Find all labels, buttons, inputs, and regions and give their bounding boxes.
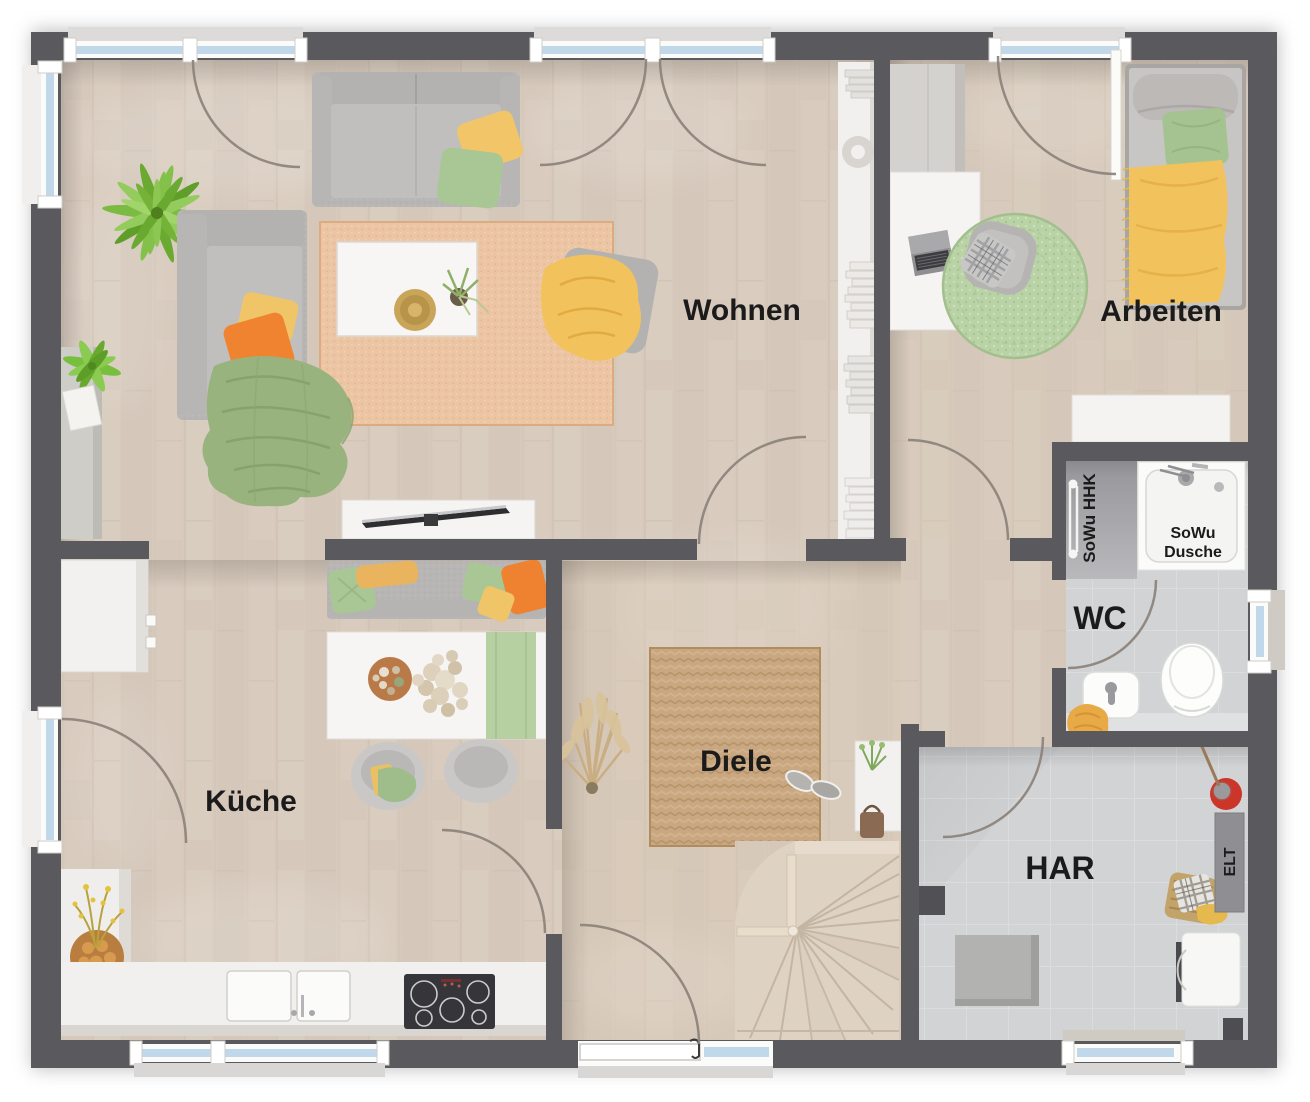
svg-text:Küche: Küche <box>205 785 297 818</box>
svg-text:Dusche: Dusche <box>1164 544 1222 561</box>
svg-text:SoWu HHK: SoWu HHK <box>1080 473 1099 563</box>
svg-text:Diele: Diele <box>700 745 772 778</box>
svg-text:ELT: ELT <box>1222 847 1239 876</box>
svg-text:Arbeiten: Arbeiten <box>1100 295 1222 328</box>
svg-text:WC: WC <box>1073 600 1126 636</box>
svg-text:HAR: HAR <box>1025 850 1094 886</box>
svg-text:SoWu: SoWu <box>1170 525 1215 542</box>
svg-text:Wohnen: Wohnen <box>683 294 801 327</box>
